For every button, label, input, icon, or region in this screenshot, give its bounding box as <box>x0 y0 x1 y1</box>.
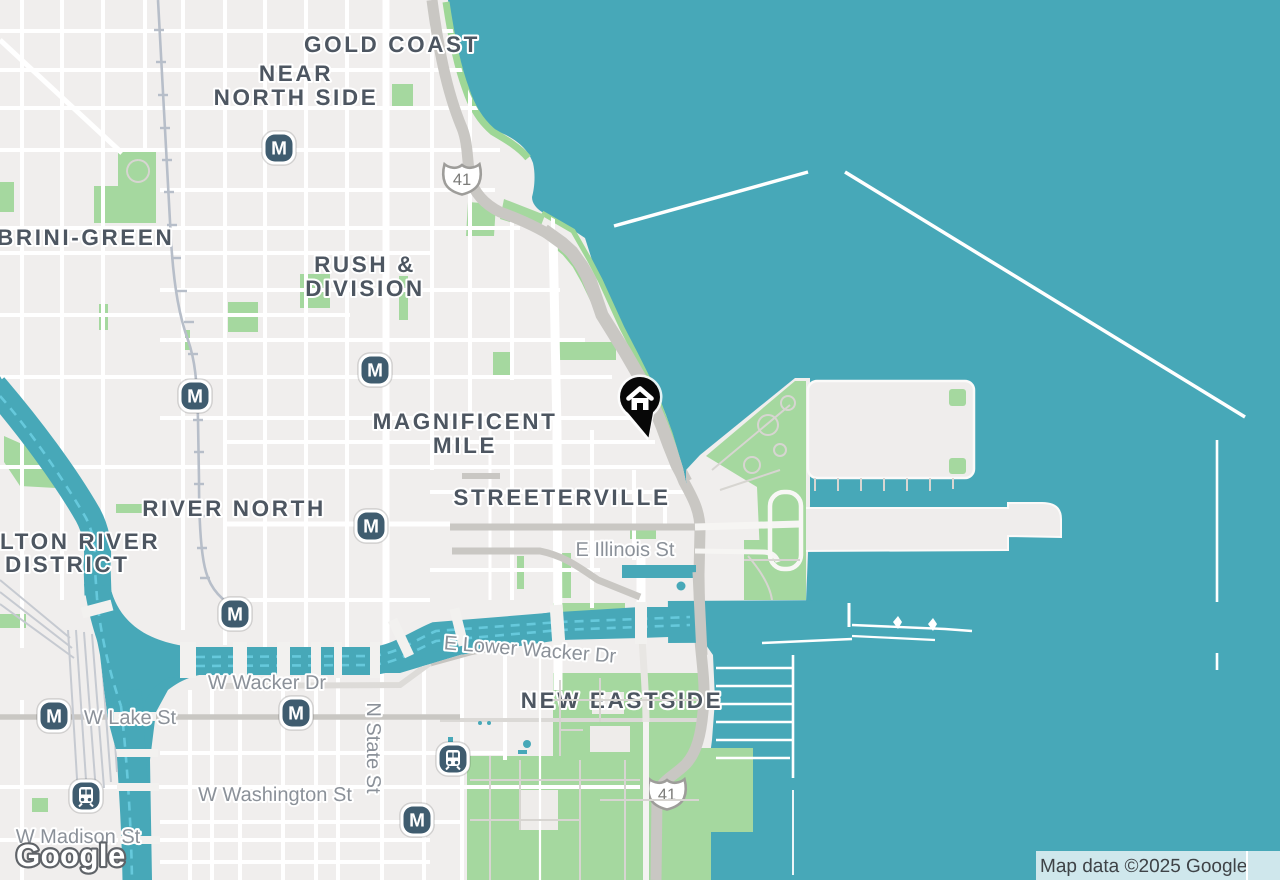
svg-text:NORTH SIDE: NORTH SIDE <box>214 85 379 110</box>
svg-text:MAGNIFICENT: MAGNIFICENT <box>373 409 558 434</box>
svg-text:RIVER NORTH: RIVER NORTH <box>142 496 326 521</box>
svg-text:E Illinois St: E Illinois St <box>576 539 675 561</box>
svg-text:RUSH &: RUSH & <box>314 252 416 277</box>
svg-text:N State St: N State St <box>362 702 384 794</box>
svg-text:W Wacker Dr: W Wacker Dr <box>208 672 326 694</box>
svg-text:DISTRICT: DISTRICT <box>5 552 130 577</box>
svg-text:W Lake St: W Lake St <box>84 707 177 729</box>
svg-text:Map data ©2025 Google: Map data ©2025 Google <box>1040 856 1247 877</box>
svg-text:NEAR: NEAR <box>259 61 333 86</box>
svg-text:W Washington St: W Washington St <box>198 784 352 806</box>
svg-text:LTON RIVER: LTON RIVER <box>0 529 160 554</box>
svg-text:STREETERVILLE: STREETERVILLE <box>453 485 670 510</box>
svg-text:DIVISION: DIVISION <box>305 276 425 301</box>
svg-text:Google: Google <box>16 838 126 873</box>
svg-text:BRINI-GREEN: BRINI-GREEN <box>0 225 174 250</box>
svg-text:GOLD COAST: GOLD COAST <box>304 32 480 57</box>
svg-text:MILE: MILE <box>433 433 497 458</box>
